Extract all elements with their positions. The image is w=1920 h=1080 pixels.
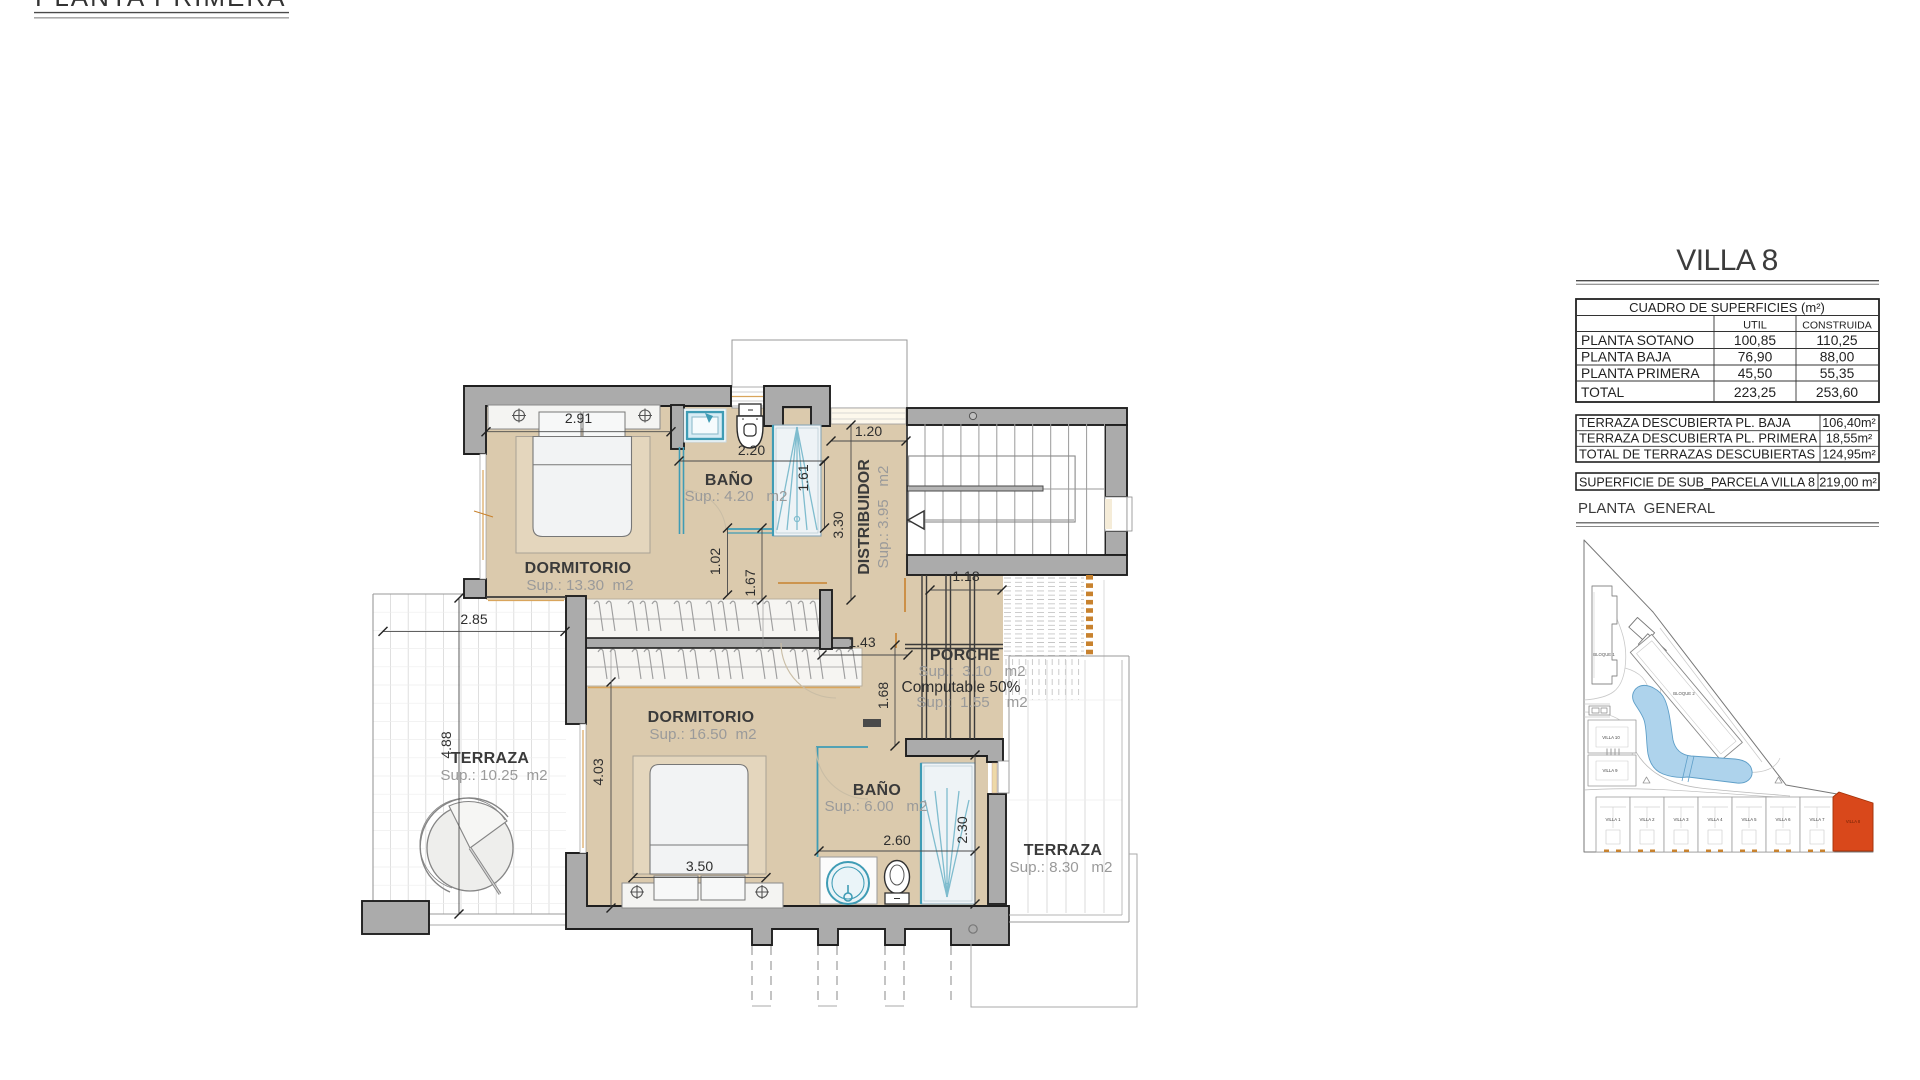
svg-text:1.61: 1.61 (795, 464, 811, 491)
svg-text:PLANTA GENERAL: PLANTA GENERAL (1578, 500, 1715, 517)
svg-text:VILLA 10: VILLA 10 (1602, 735, 1620, 740)
svg-text:3.50: 3.50 (686, 858, 713, 874)
svg-text:BAÑO: BAÑO (853, 779, 901, 799)
svg-text:110,25: 110,25 (1816, 333, 1858, 348)
svg-text:TERRAZA: TERRAZA (451, 750, 530, 767)
svg-text:Sup.: 8.30 m2: Sup.: 8.30 m2 (1010, 859, 1113, 876)
svg-text:2.91: 2.91 (565, 410, 592, 426)
svg-text:219,00 m²: 219,00 m² (1819, 475, 1877, 490)
svg-text:100,85: 100,85 (1734, 333, 1777, 348)
svg-text:2.85: 2.85 (460, 611, 487, 627)
svg-text:SUPERFICIE DE SUB_PARCELA VILL: SUPERFICIE DE SUB_PARCELA VILLA 8 (1579, 476, 1815, 490)
svg-text:CONSTRUIDA: CONSTRUIDA (1802, 320, 1871, 332)
svg-text:1.68: 1.68 (875, 682, 891, 709)
svg-text:2.60: 2.60 (883, 832, 910, 848)
svg-text:BLOQUE 2: BLOQUE 2 (1673, 691, 1695, 696)
svg-text:VILLA 5: VILLA 5 (1741, 817, 1757, 822)
svg-text:Sup.: 3.10 m2: Sup.: 3.10 m2 (918, 663, 1025, 680)
svg-text:TOTAL DE TERRAZAS DESCUBIERTAS: TOTAL DE TERRAZAS DESCUBIERTAS (1579, 446, 1815, 461)
svg-text:253,60: 253,60 (1816, 385, 1859, 400)
svg-text:45,50: 45,50 (1738, 366, 1773, 381)
svg-text:Sup.: 1.55 m2: Sup.: 1.55 m2 (916, 694, 1027, 711)
svg-text:4.03: 4.03 (590, 758, 606, 785)
svg-text:DORMITORIO: DORMITORIO (648, 709, 755, 726)
svg-text:VILLA 3: VILLA 3 (1673, 817, 1689, 822)
svg-text:2.30: 2.30 (954, 816, 970, 843)
svg-text:Sup.: 13.30 m2: Sup.: 13.30 m2 (526, 577, 633, 594)
svg-text:BAÑO: BAÑO (705, 469, 753, 489)
svg-text:VILLA 4: VILLA 4 (1707, 817, 1723, 822)
svg-text:VILLA 9: VILLA 9 (1602, 768, 1618, 773)
svg-text:TERRAZA DESCUBIERTA PL. PRIMER: TERRAZA DESCUBIERTA PL. PRIMERA (1579, 431, 1817, 446)
svg-text:Sup.: 16.50 m2: Sup.: 16.50 m2 (649, 726, 756, 743)
svg-text:DORMITORIO: DORMITORIO (525, 560, 632, 577)
svg-text:1.43: 1.43 (848, 634, 875, 650)
svg-text:Sup.: 4.20 m2: Sup.: 4.20 m2 (685, 488, 788, 505)
svg-text:124,95m²: 124,95m² (1822, 447, 1876, 461)
svg-text:55,35: 55,35 (1820, 366, 1855, 381)
svg-text:88,00: 88,00 (1820, 350, 1855, 365)
svg-text:VILLA 7: VILLA 7 (1809, 817, 1825, 822)
svg-text:Sup.: 3.95 m2: Sup.: 3.95 m2 (875, 466, 892, 569)
svg-text:TERRAZA DESCUBIERTA PL. BAJA: TERRAZA DESCUBIERTA PL. BAJA (1579, 415, 1791, 430)
svg-text:3.30: 3.30 (830, 511, 846, 538)
svg-text:BLOQUE 1: BLOQUE 1 (1593, 652, 1615, 657)
svg-text:CUADRO DE SUPERFICIES (m²): CUADRO DE SUPERFICIES (m²) (1629, 300, 1825, 315)
svg-text:PLANTA PRIMERA: PLANTA PRIMERA (35, 0, 286, 12)
svg-text:1.20: 1.20 (855, 423, 882, 439)
svg-text:TOTAL: TOTAL (1581, 385, 1625, 400)
svg-text:TERRAZA: TERRAZA (1024, 842, 1103, 859)
svg-text:VILLA 8: VILLA 8 (1846, 819, 1861, 824)
svg-text:PLANTA BAJA: PLANTA BAJA (1581, 350, 1672, 365)
svg-text:18,55m²: 18,55m² (1826, 432, 1873, 446)
svg-text:1.18: 1.18 (952, 568, 979, 584)
svg-text:PLANTA SOTANO: PLANTA SOTANO (1581, 333, 1694, 348)
svg-text:VILLA 1: VILLA 1 (1605, 817, 1621, 822)
svg-text:VILLA 2: VILLA 2 (1639, 817, 1655, 822)
svg-text:76,90: 76,90 (1738, 350, 1773, 365)
svg-text:1.67: 1.67 (742, 569, 758, 596)
svg-text:VILLA 6: VILLA 6 (1775, 817, 1791, 822)
svg-text:2.20: 2.20 (738, 442, 765, 458)
svg-text:PLANTA PRIMERA: PLANTA PRIMERA (1581, 366, 1700, 381)
svg-text:PORCHE: PORCHE (930, 647, 1000, 664)
svg-text:223,25: 223,25 (1734, 385, 1777, 400)
svg-text:106,40m²: 106,40m² (1822, 416, 1876, 430)
svg-text:UTIL: UTIL (1743, 320, 1767, 332)
svg-text:VILLA 8: VILLA 8 (1676, 244, 1778, 277)
svg-text:1.02: 1.02 (707, 548, 723, 575)
svg-text:Sup.: 6.00 m2: Sup.: 6.00 m2 (825, 798, 928, 815)
svg-text:DISTRIBUIDOR: DISTRIBUIDOR (856, 459, 873, 575)
svg-text:Sup.: 10.25 m2: Sup.: 10.25 m2 (440, 767, 547, 784)
